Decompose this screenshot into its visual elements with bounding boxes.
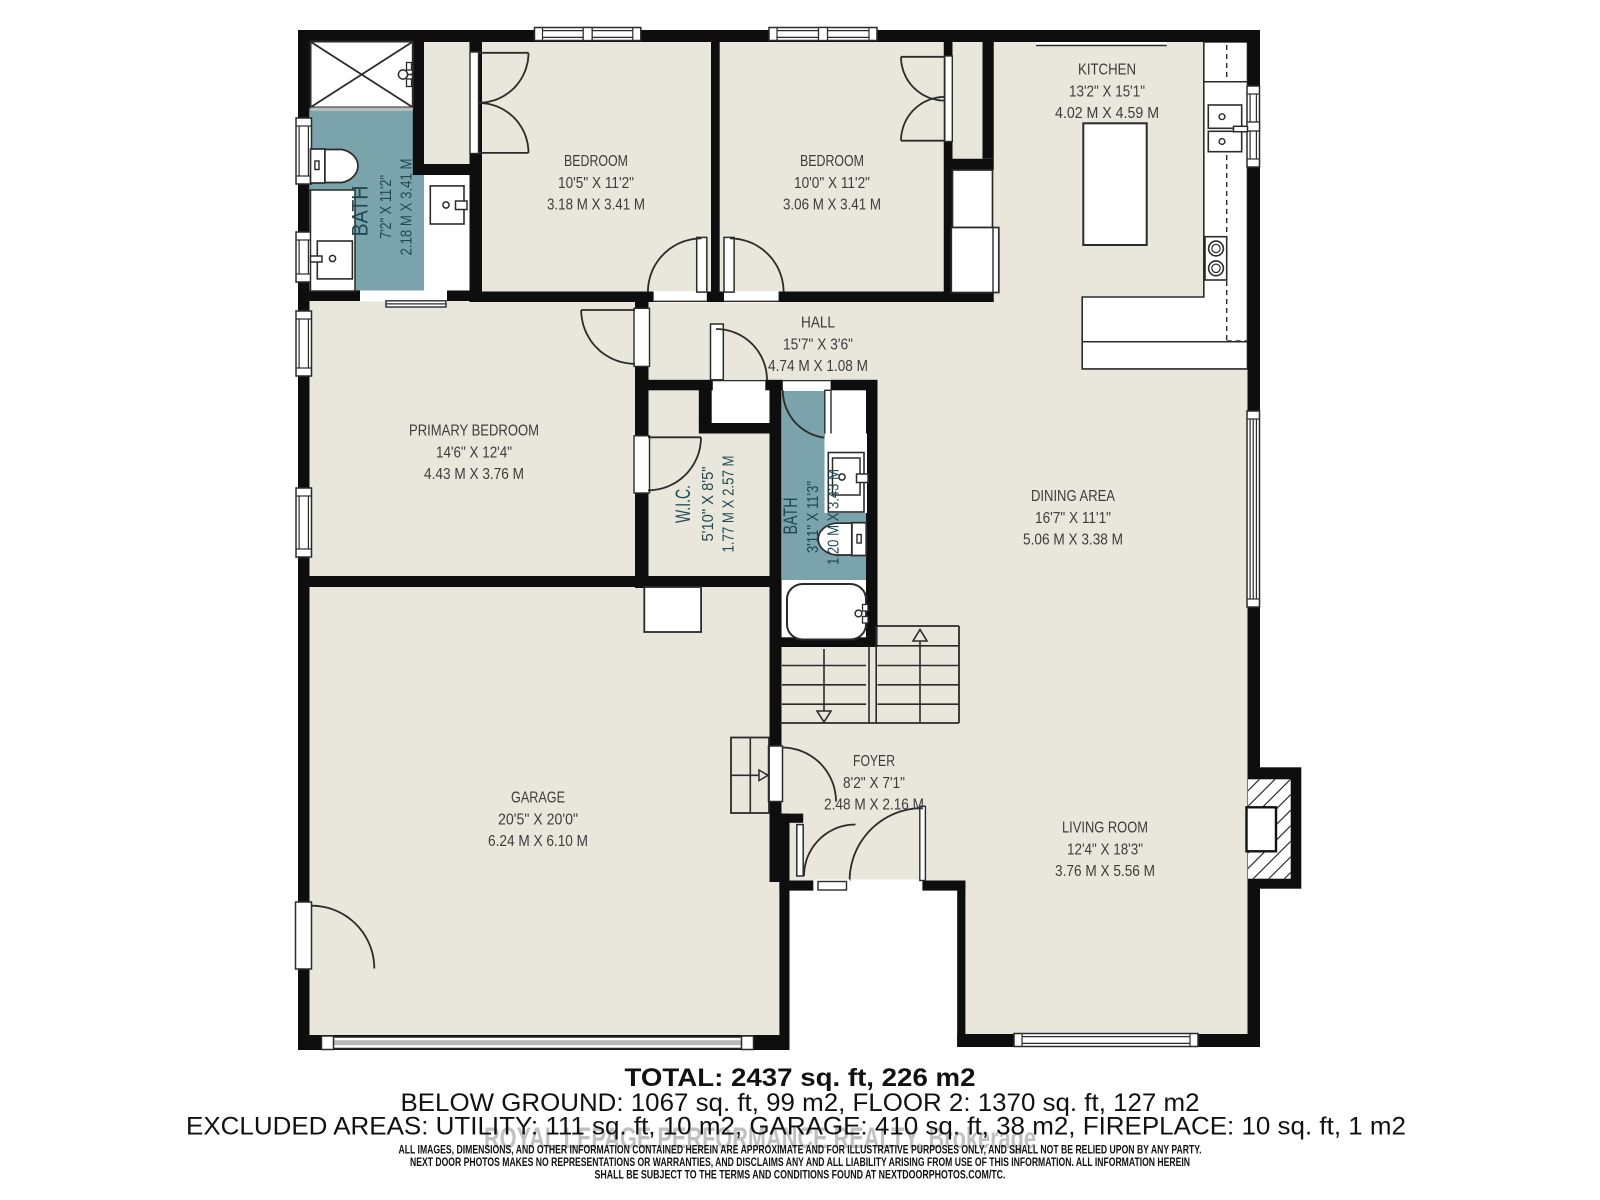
svg-text:6.24 M X 6.10 M: 6.24 M X 6.10 M bbox=[488, 833, 588, 850]
svg-text:4.74 M X 1.08 M: 4.74 M X 1.08 M bbox=[768, 358, 868, 375]
svg-text:BATH: BATH bbox=[781, 498, 802, 535]
svg-text:8'2" X 7'1": 8'2" X 7'1" bbox=[843, 775, 905, 792]
svg-text:ALL IMAGES, DIMENSIONS, AND OT: ALL IMAGES, DIMENSIONS, AND OTHER INFORM… bbox=[399, 1145, 1202, 1157]
svg-text:FOYER: FOYER bbox=[853, 753, 895, 770]
svg-text:BEDROOM: BEDROOM bbox=[800, 153, 864, 170]
svg-text:3.76 M X 5.56 M: 3.76 M X 5.56 M bbox=[1055, 863, 1155, 880]
svg-text:4.02 M X 4.59 M: 4.02 M X 4.59 M bbox=[1055, 105, 1159, 122]
svg-text:3'11" X 11'3": 3'11" X 11'3" bbox=[805, 481, 822, 553]
svg-text:1.20 M X 3.43 M: 1.20 M X 3.43 M bbox=[826, 469, 843, 565]
svg-text:BEDROOM: BEDROOM bbox=[564, 153, 628, 170]
svg-text:10'0" X 11'2": 10'0" X 11'2" bbox=[794, 175, 870, 192]
svg-text:14'6" X 12'4": 14'6" X 12'4" bbox=[436, 444, 512, 461]
svg-text:EXCLUDED AREAS: UTILITY: 111 s: EXCLUDED AREAS: UTILITY: 111 sq. ft, 10 … bbox=[186, 1113, 1406, 1141]
svg-text:4.43 M X 3.76 M: 4.43 M X 3.76 M bbox=[424, 466, 524, 483]
svg-text:DINING AREA: DINING AREA bbox=[1031, 488, 1115, 505]
svg-text:5.06 M X 3.38 M: 5.06 M X 3.38 M bbox=[1023, 532, 1123, 549]
svg-text:15'7" X 3'6": 15'7" X 3'6" bbox=[783, 336, 853, 353]
svg-text:SHALL BE SUBJECT TO THE TERMS: SHALL BE SUBJECT TO THE TERMS AND CONDIT… bbox=[595, 1170, 1006, 1182]
svg-text:10'5" X 11'2": 10'5" X 11'2" bbox=[558, 175, 634, 192]
svg-text:20'5" X 20'0": 20'5" X 20'0" bbox=[498, 811, 578, 828]
svg-text:PRIMARY BEDROOM: PRIMARY BEDROOM bbox=[409, 423, 539, 440]
svg-text:GARAGE: GARAGE bbox=[511, 790, 565, 807]
svg-text:12'4" X 18'3": 12'4" X 18'3" bbox=[1067, 841, 1143, 858]
svg-text:16'7" X 11'1": 16'7" X 11'1" bbox=[1035, 510, 1111, 527]
svg-text:3.06 M X 3.41 M: 3.06 M X 3.41 M bbox=[783, 197, 881, 214]
svg-text:7'2" X 11'2": 7'2" X 11'2" bbox=[378, 175, 395, 239]
svg-text:HALL: HALL bbox=[801, 315, 835, 332]
svg-text:NEXT DOOR PHOTOS MAKES NO REPR: NEXT DOOR PHOTOS MAKES NO REPRESENTATION… bbox=[410, 1157, 1190, 1169]
svg-text:W.I.C.: W.I.C. bbox=[672, 485, 695, 523]
svg-text:2.48 M X 2.16 M: 2.48 M X 2.16 M bbox=[824, 797, 924, 814]
svg-text:TOTAL: 2437 sq. ft, 226 m2: TOTAL: 2437 sq. ft, 226 m2 bbox=[625, 1064, 976, 1092]
svg-text:1.77 M X 2.57 M: 1.77 M X 2.57 M bbox=[721, 456, 738, 553]
svg-text:LIVING ROOM: LIVING ROOM bbox=[1062, 820, 1148, 837]
svg-text:5'10" X 8'5": 5'10" X 8'5" bbox=[700, 467, 717, 542]
svg-text:2.18 M X 3.41 M: 2.18 M X 3.41 M bbox=[398, 159, 415, 256]
svg-text:BATH: BATH bbox=[348, 186, 373, 237]
svg-text:3.18 M X 3.41 M: 3.18 M X 3.41 M bbox=[547, 197, 645, 214]
svg-text:KITCHEN: KITCHEN bbox=[1078, 62, 1136, 79]
svg-text:13'2" X 15'1": 13'2" X 15'1" bbox=[1069, 83, 1145, 100]
